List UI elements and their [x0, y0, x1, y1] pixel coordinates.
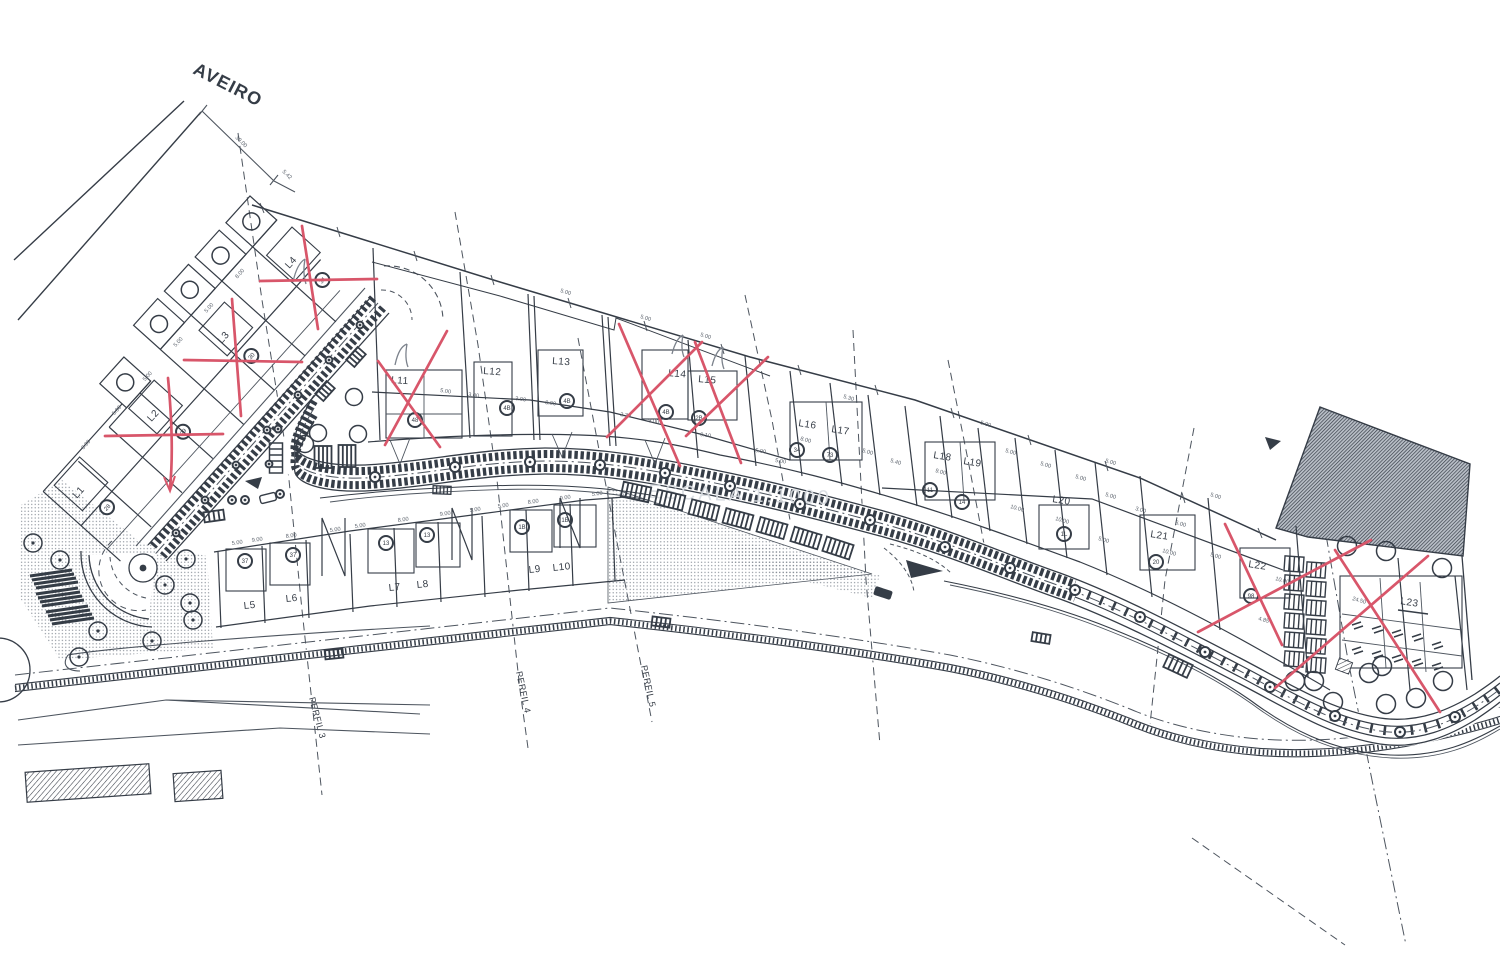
svg-text:L12: L12: [483, 366, 502, 378]
svg-text:98: 98: [1248, 594, 1255, 600]
svg-text:L9: L9: [528, 564, 541, 576]
svg-text:4B: 4B: [662, 410, 669, 416]
svg-text:14: 14: [959, 500, 966, 506]
svg-text:1B: 1B: [518, 525, 525, 531]
svg-text:20: 20: [1153, 560, 1160, 566]
svg-text:37: 37: [290, 553, 297, 559]
svg-text:37: 37: [242, 559, 249, 565]
svg-text:4B: 4B: [563, 399, 570, 405]
svg-text:13: 13: [383, 541, 390, 547]
svg-text:11: 11: [927, 488, 934, 494]
svg-text:1L: 1L: [1061, 532, 1068, 538]
svg-text:34: 34: [794, 448, 801, 454]
svg-text:48: 48: [412, 418, 419, 424]
svg-text:L13: L13: [552, 356, 571, 368]
svg-text:1B: 1B: [561, 518, 568, 524]
svg-text:73: 73: [827, 453, 834, 459]
svg-text:L6: L6: [285, 593, 298, 605]
svg-text:L8: L8: [416, 579, 429, 591]
svg-text:L10: L10: [552, 561, 571, 574]
svg-text:13: 13: [424, 533, 431, 539]
svg-text:L5: L5: [243, 600, 256, 612]
svg-text:4B: 4B: [503, 406, 510, 412]
svg-text:L7: L7: [388, 582, 401, 594]
